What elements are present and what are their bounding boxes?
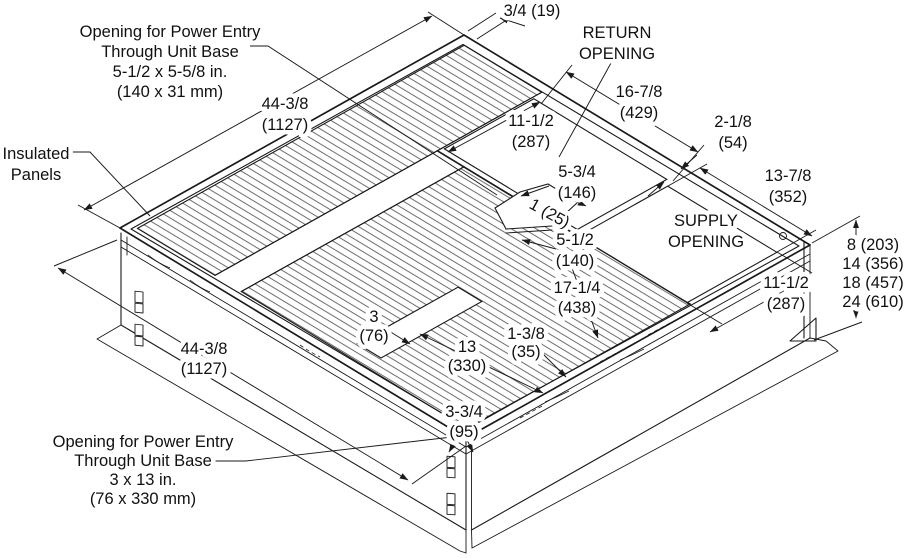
dim-11-12-supply: 11-1/2(287) [763,274,809,313]
ext-34-a [468,13,496,31]
dim-2-18: 2-1/8(54) [714,113,752,152]
ext-44-bottom-a [54,240,117,266]
leader-insulated-panels [67,152,150,216]
return-opening-label: RETURNOPENING [579,24,655,63]
arrow-334-a [449,440,456,452]
arrow-218-b [681,155,697,169]
dim-44-38-bottom: 44-3/8(1127) [181,340,228,378]
right-corner-gusset [790,318,816,341]
callout-power-entry-bottom: Opening for Power EntryThrough Unit Base… [53,433,234,508]
height-options: 8 (203)14 (356)18 (457)24 (610) [842,236,903,311]
dim-13-78: 13-7/8(352) [765,167,812,206]
ext-34-b [477,21,505,39]
ext-height-bottom [814,322,862,340]
ext-44-top-b [428,12,464,35]
dim-1-38: 1-3/8(35) [507,325,545,361]
ext-1378-a [668,164,707,186]
drawing-canvas: Opening for Power EntryThrough Unit Base… [0,0,910,558]
callout-power-entry-top: Opening for Power EntryThrough Unit Base… [80,23,261,101]
flange-corner [466,530,472,553]
dim-44-38-top: 44-3/8(1127) [262,95,309,134]
insulated-panels-label: InsulatedPanels [3,145,70,184]
ext-44-top-a [78,205,120,228]
ext-44-bottom-b [412,446,466,484]
dim-three-quarter: 3/4 (19) [504,2,561,20]
dim-16-78: 16-7/8(429) [616,83,663,122]
unit-base-isometric-diagram: Opening for Power EntryThrough Unit Base… [0,0,910,558]
